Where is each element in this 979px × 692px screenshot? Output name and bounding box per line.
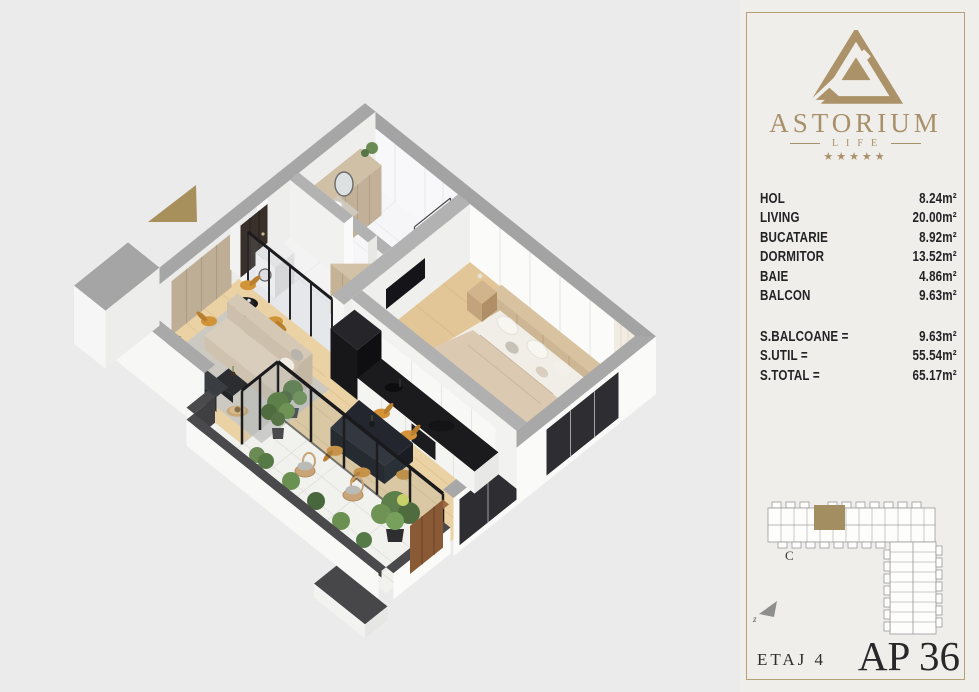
room-area: 13.52m²	[912, 249, 956, 265]
room-area: 8.92m²	[919, 230, 957, 246]
room-area: 4.86m²	[919, 269, 957, 285]
floorplan-render	[0, 0, 740, 692]
room-area-row: BUCATARIE 8.92m²	[760, 230, 957, 249]
north-label: z	[752, 614, 757, 624]
north-arrow-icon	[759, 601, 777, 617]
astorium-triangle-logo-icon	[740, 30, 971, 111]
totals-list: S.BALCOANE = 9.63m² S.UTIL = 55.54m² S.T…	[760, 329, 957, 387]
total-label: S.TOTAL =	[760, 368, 820, 384]
floor-label: ETAJ 4	[757, 650, 826, 670]
highlighted-unit	[814, 505, 845, 530]
building-site-plan: C z	[752, 496, 952, 645]
total-value: 9.63m²	[919, 329, 957, 345]
five-stars: ★★★★★	[740, 150, 971, 163]
section-label: C	[785, 548, 794, 563]
hob	[429, 421, 455, 432]
room-area: 9.63m²	[919, 288, 957, 304]
total-label: S.UTIL =	[760, 348, 808, 364]
info-panel: ASTORIUM LIFE ★★★★★ HOL 8.24m² LIVING 20…	[740, 0, 979, 692]
room-label: BAIE	[760, 269, 788, 285]
entrance-direction-arrow-icon	[148, 185, 197, 222]
apartment-number: AP 36	[858, 632, 960, 680]
total-value: 65.17m²	[912, 368, 956, 384]
room-label: DORMITOR	[760, 249, 824, 265]
brand-tagline: LIFE	[740, 138, 971, 149]
total-row: S.TOTAL = 65.17m²	[760, 368, 957, 387]
room-label: BUCATARIE	[760, 230, 828, 246]
brand-name: ASTORIUM	[740, 108, 971, 139]
room-area-row: BAIE 4.86m²	[760, 269, 957, 288]
bathroom-mirror	[335, 172, 353, 196]
room-areas-list: HOL 8.24m² LIVING 20.00m² BUCATARIE 8.92…	[760, 191, 957, 307]
room-area-row: HOL 8.24m²	[760, 191, 957, 210]
total-value: 55.54m²	[912, 348, 956, 364]
room-label: BALCON	[760, 288, 811, 304]
total-label: S.BALCOANE =	[760, 329, 849, 345]
tagline-line-right	[891, 143, 921, 144]
apartment-isometric-svg	[0, 0, 740, 692]
room-area-row: LIVING 20.00m²	[760, 210, 957, 229]
tagline-line-left	[790, 143, 820, 144]
room-label: LIVING	[760, 210, 800, 226]
total-row: S.UTIL = 55.54m²	[760, 348, 957, 367]
room-area: 20.00m²	[912, 210, 956, 226]
total-row: S.BALCOANE = 9.63m²	[760, 329, 957, 348]
room-area-row: BALCON 9.63m²	[760, 288, 957, 307]
room-area: 8.24m²	[919, 191, 957, 207]
room-area-row: DORMITOR 13.52m²	[760, 249, 957, 268]
room-label: HOL	[760, 191, 785, 207]
